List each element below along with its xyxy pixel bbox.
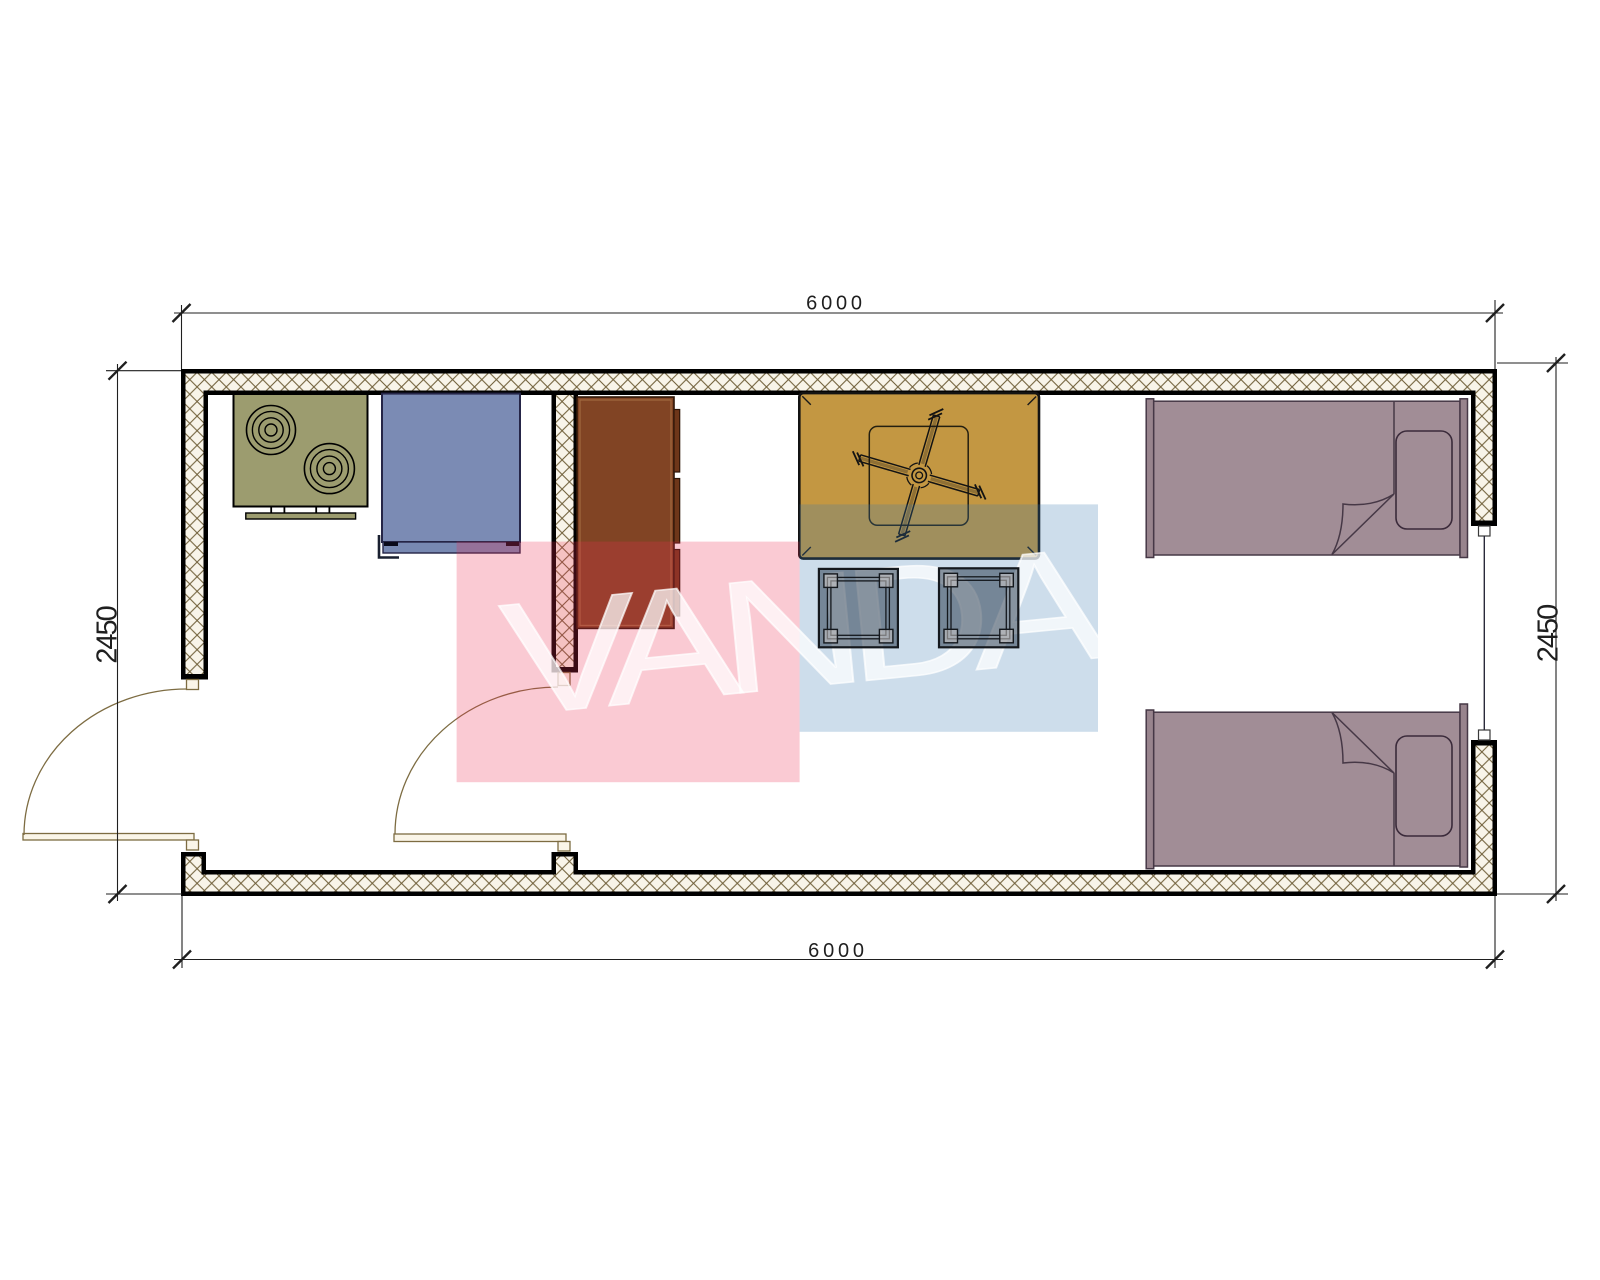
svg-text:2450: 2450 xyxy=(92,606,124,663)
svg-text:6000: 6000 xyxy=(806,293,866,315)
svg-text:2450: 2450 xyxy=(1533,605,1565,662)
svg-text:6000: 6000 xyxy=(808,940,868,962)
